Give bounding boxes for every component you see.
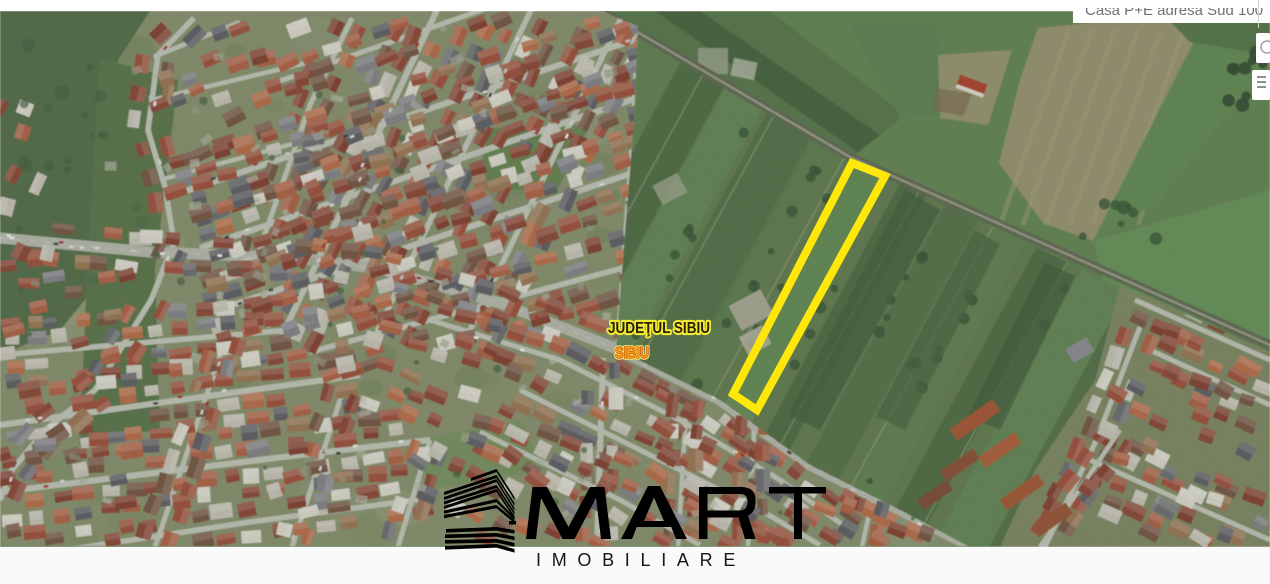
svg-text:IMOBILIARE: IMOBILIARE xyxy=(536,550,746,570)
svg-text:JUDEŢUL SIBIU: JUDEŢUL SIBIU xyxy=(608,320,710,337)
svg-text:SIBIU: SIBIU xyxy=(615,345,649,362)
